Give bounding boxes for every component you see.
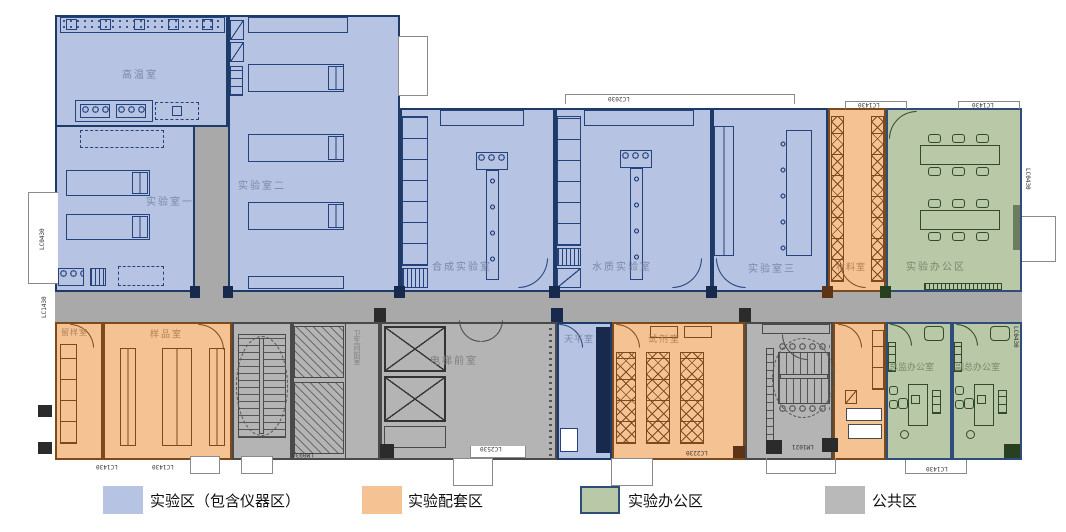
legend-swatch-lab-zone <box>103 486 143 514</box>
room-label-elevator-lobby: 电梯前室 <box>430 352 478 367</box>
window-code: LC0430 <box>40 228 46 250</box>
room-label-reagent: 试剂室 <box>648 332 681 345</box>
column <box>549 286 560 298</box>
bench-instrument <box>328 204 344 228</box>
legend-label-support-zone: 实验配套区 <box>408 490 483 511</box>
room-label-lab-office-area: 实验办公区 <box>906 258 966 273</box>
room-label-sample-retention: 留样室 <box>61 327 88 338</box>
wall-panel <box>1013 205 1020 250</box>
elevator-shaft <box>384 376 446 422</box>
stair-swing <box>236 336 288 436</box>
bench-instrument <box>328 66 344 90</box>
wall-counter <box>248 276 344 289</box>
toilet-room <box>294 326 344 378</box>
sink-unit <box>58 268 84 286</box>
reserved-area <box>118 266 164 286</box>
guest-chair <box>889 386 898 395</box>
chair <box>928 167 941 176</box>
chair <box>952 232 965 241</box>
reagent-rack <box>616 352 636 444</box>
column <box>394 286 405 298</box>
legend-label-lab-zone: 实验区（包含仪器区） <box>150 490 300 511</box>
reagent-rack <box>680 352 704 444</box>
window-bay <box>1022 216 1056 262</box>
window-code: LC0430 <box>1024 168 1030 190</box>
stair-swing <box>772 338 834 418</box>
guest-chair <box>955 386 964 395</box>
dotted-wall <box>766 348 774 444</box>
desk <box>974 384 994 426</box>
sample-rack <box>162 348 192 446</box>
window-code: LC2230 <box>686 449 708 455</box>
room-label-synthesis: 合成实验室 <box>432 258 492 273</box>
window-code: LC2530 <box>480 445 502 451</box>
wall-counter <box>584 110 694 126</box>
door-code: LM1021 <box>792 443 814 449</box>
chair <box>928 199 941 208</box>
column <box>1004 444 1020 458</box>
floor-plan: 高温室 实验室一 实验室二 合成实验室 水质实验室 实验室三 材料室 实验办公区… <box>0 0 1066 532</box>
louver-unit <box>90 268 106 286</box>
column <box>822 438 838 452</box>
office-table <box>920 210 1000 230</box>
column <box>822 286 833 298</box>
column <box>190 286 200 298</box>
column <box>374 308 386 322</box>
window-bay <box>241 456 273 474</box>
island-bench-head <box>620 150 652 168</box>
window-code: LC1430 <box>972 101 994 107</box>
chair <box>952 134 965 143</box>
bench-instrument <box>132 216 148 238</box>
legend-swatch-office-zone <box>580 486 620 514</box>
toilet-room <box>294 382 344 454</box>
column <box>38 442 52 454</box>
oven-unit <box>116 104 146 118</box>
desk <box>908 384 928 426</box>
column <box>223 286 233 298</box>
room-label-material: 材料室 <box>836 260 866 273</box>
armchair <box>990 326 1010 341</box>
chair <box>976 199 989 208</box>
column <box>739 308 751 322</box>
window-code: LC1430 <box>858 101 880 107</box>
column <box>38 405 52 417</box>
reagent-rack <box>646 352 670 444</box>
desk-chair <box>964 398 974 409</box>
partition-line <box>345 322 346 460</box>
column <box>706 286 717 298</box>
armchair <box>924 326 944 341</box>
monitor <box>911 395 920 404</box>
window-code: LC1430 <box>96 463 118 469</box>
sample-rack <box>120 348 136 446</box>
window-code: LC1430 <box>42 296 48 318</box>
guest-chair <box>889 400 898 409</box>
dimension-bracket <box>565 94 795 104</box>
equipment-box <box>100 19 111 30</box>
window-bay <box>190 456 220 474</box>
room-label-water-quality: 水质实验室 <box>592 258 652 273</box>
room-label-director-office: 总监办公室 <box>889 360 934 373</box>
office-table <box>920 145 1000 165</box>
equipment-box <box>168 19 179 30</box>
legend-label-public-zone: 公共区 <box>872 490 917 511</box>
chair <box>928 232 941 241</box>
instrument-column <box>402 116 428 266</box>
chair <box>928 134 941 143</box>
instrument-dots <box>778 134 788 254</box>
equipment-box <box>172 106 182 116</box>
column <box>766 440 782 454</box>
equipment-box <box>134 19 145 30</box>
bench-instrument <box>132 172 148 194</box>
stair-landing <box>762 324 830 334</box>
partition-line <box>101 326 102 458</box>
desk-chair <box>898 398 908 409</box>
table <box>684 326 712 338</box>
legend-swatch-public-zone <box>825 486 865 514</box>
equipment-box <box>845 390 857 404</box>
reserved-area <box>80 130 164 148</box>
window-code: LC1430 <box>926 465 948 471</box>
window-code: LC2030 <box>608 95 630 101</box>
material-rack <box>871 116 884 282</box>
bench-instrument <box>328 136 344 160</box>
equipment-box <box>66 19 77 30</box>
column <box>733 446 745 458</box>
room-label-deputy-office: 副总办公室 <box>955 360 1000 373</box>
door-code: LM0930 <box>292 451 314 457</box>
cabinet <box>998 390 1007 414</box>
legend: 实验区（包含仪器区） 实验配套区 实验办公区 公共区 <box>0 480 1066 528</box>
cabinet <box>846 408 882 421</box>
storage-shelf <box>872 330 884 390</box>
cabinet <box>932 390 941 414</box>
column <box>880 286 891 298</box>
room-label-lab-three: 实验室三 <box>748 260 796 275</box>
main-corridor <box>55 290 1022 322</box>
room-label-lab-one: 实验室一 <box>146 193 194 208</box>
dotted-wall <box>549 324 552 456</box>
room-label-sample: 样品室 <box>150 327 183 340</box>
room-label-balance: 天平室 <box>564 332 594 345</box>
wall-counter <box>714 126 734 256</box>
plant <box>966 430 975 439</box>
louver-unit <box>402 268 428 288</box>
guest-chair <box>955 400 964 409</box>
plant <box>900 430 909 439</box>
equipment-box <box>230 20 244 40</box>
room-label-high-temp: 高温室 <box>122 66 158 81</box>
room-label-lab-two: 实验室二 <box>238 177 286 192</box>
column <box>551 308 563 322</box>
dimension-bracket <box>766 458 836 474</box>
instrument-bench <box>786 130 812 256</box>
chair <box>952 199 965 208</box>
louver-unit <box>557 248 581 266</box>
column <box>380 444 394 458</box>
legend-label-office-zone: 实验办公区 <box>628 490 703 511</box>
counter <box>560 428 578 452</box>
material-rack <box>831 116 844 282</box>
island-bench-head <box>476 152 508 170</box>
sample-rack <box>209 348 225 446</box>
window-bay <box>398 36 428 96</box>
equipment-box <box>202 19 213 30</box>
wall-counter <box>440 110 524 126</box>
instrument-column <box>557 116 581 246</box>
vertical-corridor <box>195 125 228 292</box>
instrument-column <box>596 327 610 453</box>
legend-swatch-support-zone <box>362 486 402 514</box>
radiator <box>924 283 1002 290</box>
louver-unit <box>230 66 243 96</box>
window-code: LC1430 <box>152 463 174 469</box>
chair <box>952 167 965 176</box>
window-code: LC0430 <box>1012 326 1018 348</box>
equipment-box <box>557 268 581 288</box>
room-label-toilet-front: 卫生间前室 <box>351 330 361 365</box>
wall-counter <box>248 17 348 33</box>
equipment-box <box>230 42 244 62</box>
monitor <box>977 395 986 404</box>
chair <box>976 167 989 176</box>
chair <box>976 232 989 241</box>
storage-shelf <box>60 344 77 444</box>
chair <box>976 134 989 143</box>
x-cabinet <box>848 424 882 439</box>
oven-unit <box>80 104 110 118</box>
